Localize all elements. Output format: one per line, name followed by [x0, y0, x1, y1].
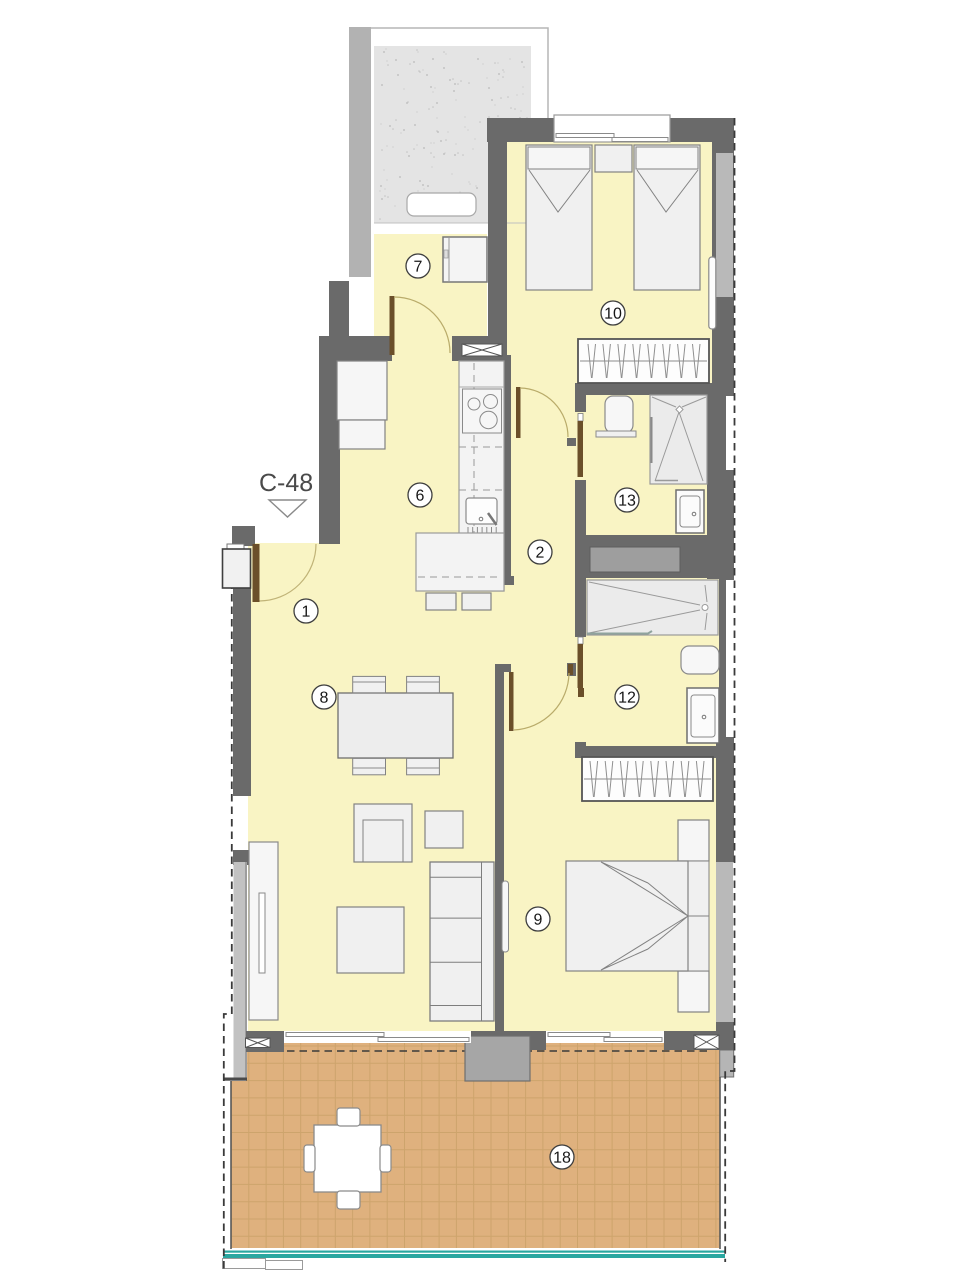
svg-text:18: 18: [553, 1150, 571, 1167]
svg-text:13: 13: [618, 493, 636, 510]
svg-text:C-48: C-48: [259, 469, 313, 497]
svg-text:7: 7: [414, 259, 423, 276]
svg-text:10: 10: [604, 306, 622, 323]
svg-text:12: 12: [618, 690, 636, 707]
svg-text:8: 8: [320, 690, 329, 707]
svg-text:1: 1: [302, 604, 311, 621]
svg-text:6: 6: [416, 488, 425, 505]
svg-text:2: 2: [536, 545, 545, 562]
svg-text:9: 9: [534, 912, 543, 929]
